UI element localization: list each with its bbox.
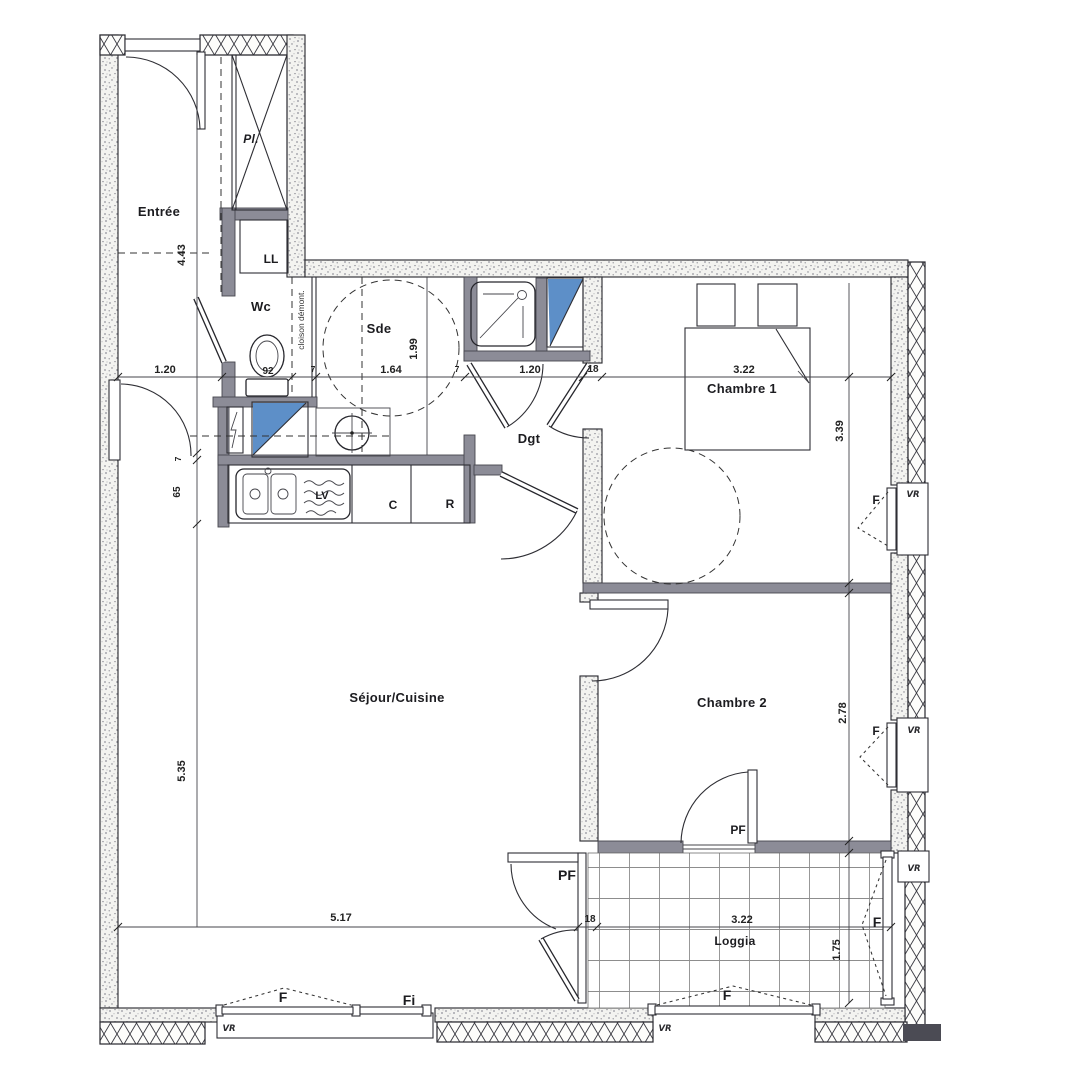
wall-corner-block [903,1024,941,1041]
dim-sde-width: 1.64 [380,364,402,376]
wc-door [196,298,224,362]
dim-loggia-width: 3.22 [731,914,752,926]
room-label-loggia: Loggia [714,934,755,948]
wall-bottom-2 [435,1008,653,1022]
wall-entree-right [287,35,305,277]
dim-entree-length: 4.43 [176,244,188,265]
wall-right-hatch-1 [908,262,925,485]
wall-right-loggia [905,880,925,1025]
chambre1-door [549,364,589,438]
wall-bottom-3 [815,1008,905,1022]
room-label-dgt: Dgt [518,431,541,446]
wall-top-entree-left [100,35,125,55]
entree-sejour-door [109,380,191,460]
label-vr-sejour: VR [222,1024,235,1034]
wall-right-hatch-3 [908,790,925,853]
wardrobe [232,55,287,210]
chambre2-french-window [681,770,757,849]
label-pf-sejour: PF [558,867,576,883]
room-label-wc: Wc [251,299,271,314]
washbasin [316,408,390,456]
dim-sde-depth: 1.99 [408,338,420,359]
room-label-chambre1: Chambre 1 [707,381,777,396]
dim-sejour-depth: 5.35 [176,760,188,781]
label-f-chambre2: F [872,724,879,738]
chambre2-door [590,600,668,681]
entrance-door [126,52,205,129]
dim-wall-18b: 18 [584,914,596,925]
wall-left [100,35,118,1008]
kitchen-counter [228,465,470,523]
label-fridge: R [446,497,455,511]
dim-entree-passage: 1.20 [154,364,175,376]
entrance-door-opening [125,39,200,51]
window-sejour [216,988,431,1016]
kitchen-unit-blue [252,402,308,457]
dim-sejour-width: 5.17 [330,912,351,924]
label-cooker: C [389,498,398,512]
dim-chambre1-width: 3.22 [733,364,754,376]
room-label-sde: Sde [367,321,392,336]
floor-plan-page: Entrée Pl. Wc Sde Dgt Chambre 1 Chambre … [0,0,1065,1080]
label-fi-sejour: Fi [403,992,415,1008]
label-f-loggia-right: F [873,914,882,930]
dim-partition-c: 7 [173,456,183,461]
room-label-entree: Entrée [138,204,180,219]
shower-tray [471,282,535,346]
wall-right-hatch-2 [908,553,925,720]
loggia-floor [588,853,885,1008]
label-f-sejour: F [279,989,288,1005]
dim-partition-a: 7 [311,364,316,374]
turning-circle-chambre1 [604,448,740,584]
wall-bottom-hatch-2 [437,1022,653,1042]
dim-partition-b: 7 [455,364,460,374]
label-washing-machine: LL [264,252,279,266]
turning-circle-sde [323,280,459,416]
wall-bottom-hatch-1 [100,1022,205,1044]
dim-chambre2-depth: 2.78 [837,702,849,723]
room-label-sejour: Séjour/Cuisine [349,690,444,705]
label-pf-chambre2: PF [730,823,745,837]
wall-top-entree-right [200,35,293,55]
wall-right-1 [891,277,908,485]
floor-plan: Entrée Pl. Wc Sde Dgt Chambre 1 Chambre … [0,0,1065,1080]
fixtures [227,55,810,584]
label-f-loggia-bottom: F [723,987,732,1003]
label-partition-note: cloison démont. [296,290,306,350]
label-dishwasher: LV [315,490,329,502]
room-label-chambre2: Chambre 2 [697,695,767,710]
dim-wc-width: 92 [262,366,274,377]
wall-bottom-hatch-3 [815,1022,907,1042]
loadbearing-partitions [580,277,602,841]
dim-wall-18a: 18 [587,364,599,375]
label-vr-chambre2: VR [907,726,920,736]
dim-kitchen-return: 65 [172,486,183,498]
dgt-sejour-door [501,474,577,559]
shower-unit-blue [547,278,583,347]
label-vr-chambre1: VR [906,490,919,500]
room-label-placard: Pl. [243,132,259,146]
wall-right-3 [891,790,908,853]
label-vr-loggia-bottom: VR [658,1024,671,1034]
label-f-chambre1: F [872,493,879,507]
label-vr-loggia-right: VR [907,864,920,874]
wall-bottom-1 [100,1008,218,1022]
dim-loggia-depth: 1.75 [831,939,843,960]
dim-dgt-passage: 1.20 [519,364,540,376]
wall-right-2 [891,553,908,720]
dim-chambre1-depth: 3.39 [834,420,846,441]
wall-top-main [305,260,908,277]
